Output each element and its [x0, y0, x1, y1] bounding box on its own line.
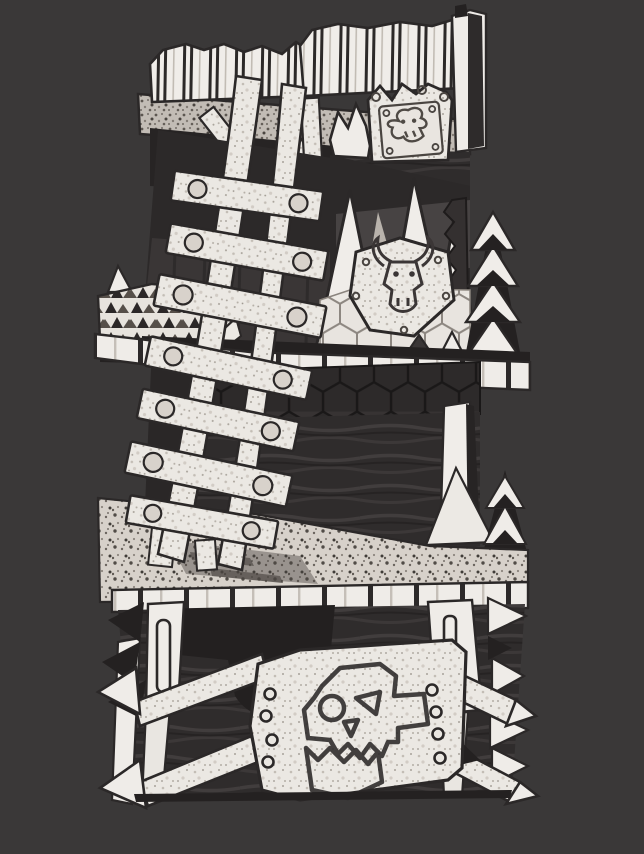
- skull-and-crossbones-plaque: [250, 640, 466, 800]
- base-level: [98, 582, 538, 808]
- riveted-glyph-plate: [368, 84, 452, 162]
- render-stage: [0, 0, 644, 854]
- corrugated-roof-panel-right: [300, 20, 462, 96]
- artwork-canvas: [0, 0, 644, 854]
- corner-support-post: [452, 4, 486, 152]
